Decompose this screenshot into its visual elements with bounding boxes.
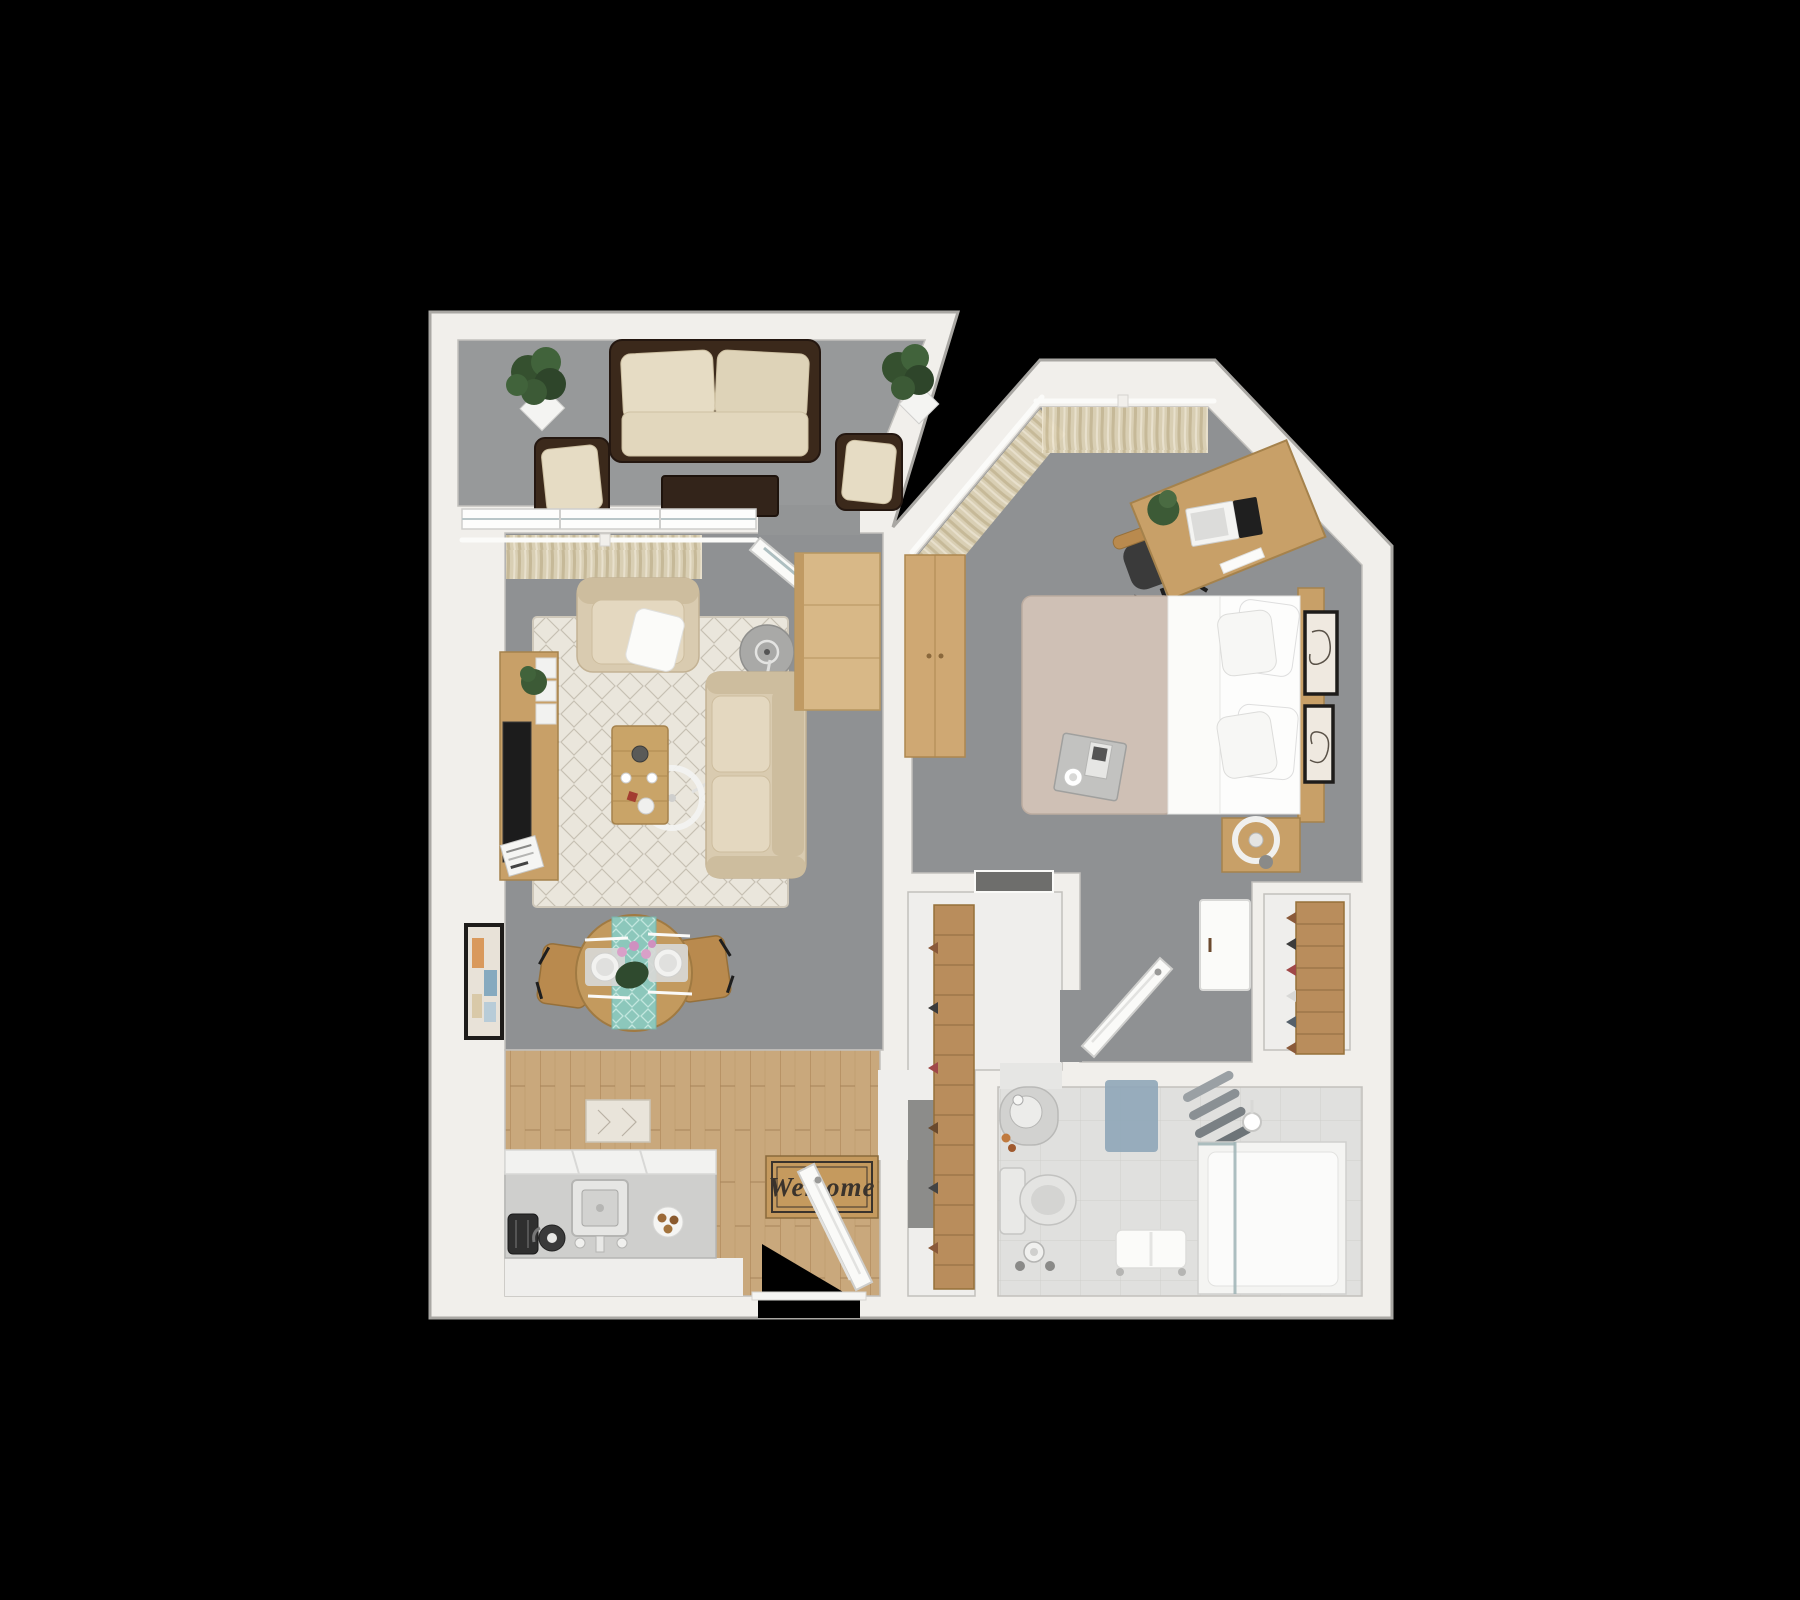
wall-art-living [466,925,502,1038]
toiletries [1002,1134,1011,1143]
armchair [577,578,699,673]
door-knob [815,1177,822,1184]
kitchen-white-floor [505,1258,743,1296]
outdoor-armchair-right [836,434,902,510]
hall-kitchen-opening [878,1070,910,1160]
outdoor-sofa [610,340,820,462]
white-cabinet [1200,900,1250,990]
pantry-shelves [928,905,974,1289]
bed [1022,588,1324,822]
sheet-fold [1168,596,1220,814]
wall-art-bedroom-1 [1305,612,1337,694]
breakfast-tray [1054,733,1127,801]
floor-plan-svg: Welcome [0,0,1800,1600]
wall-art-bedroom-2 [1305,706,1333,782]
wall-niche [975,871,1053,892]
kitchen-counter [505,1150,716,1258]
coffee-table [612,726,668,824]
dresser-cabinet [795,553,880,710]
shower-head [1243,1113,1261,1131]
tv-console [500,652,558,880]
pantry-shadow [908,1100,936,1228]
floor-plan-render: Welcome [0,0,1800,1600]
door-knob [1155,969,1162,976]
nightstand [1222,818,1300,872]
bath-mat [1105,1080,1158,1152]
outdoor-armchair-left [535,438,609,520]
sofa [706,672,806,878]
espresso-maker [632,746,648,762]
bathroom-door-opening [1000,1063,1062,1089]
kitchen-rug [586,1100,650,1142]
bedroom-door-opening [1060,990,1082,1062]
wardrobe [905,555,965,757]
bedroom-curtain-top [1042,407,1208,453]
sink [572,1180,628,1252]
breakfast-plate [653,1207,683,1237]
entry-doorway-gap [758,1298,860,1318]
faucet [596,1236,604,1252]
